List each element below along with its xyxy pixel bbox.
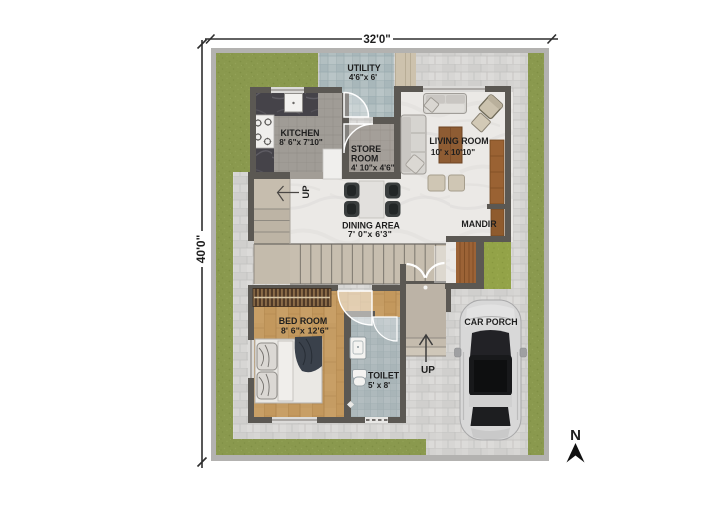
svg-text:ROOM: ROOM	[351, 154, 378, 164]
svg-text:UP: UP	[301, 185, 312, 199]
svg-text:7' 0"x 6'3": 7' 0"x 6'3"	[348, 229, 392, 239]
svg-text:32'0": 32'0"	[363, 34, 390, 46]
svg-text:8' 6"x 12'6": 8' 6"x 12'6"	[281, 326, 329, 336]
svg-text:KITCHEN: KITCHEN	[280, 128, 319, 138]
svg-text:10' x 10'10": 10' x 10'10"	[431, 148, 475, 157]
svg-text:MANDIR: MANDIR	[461, 219, 497, 229]
svg-text:8' 6"x 7'10": 8' 6"x 7'10"	[279, 138, 323, 147]
svg-text:40'0": 40'0"	[194, 235, 208, 264]
svg-text:N: N	[570, 427, 581, 444]
svg-text:5' x 8': 5' x 8'	[368, 381, 390, 390]
svg-text:STORE: STORE	[351, 144, 381, 154]
svg-text:LIVING ROOM: LIVING ROOM	[429, 136, 488, 146]
svg-text:UTILITY: UTILITY	[347, 63, 380, 73]
svg-text:4' 10"x 4'6": 4' 10"x 4'6"	[351, 164, 395, 173]
svg-text:CAR PORCH: CAR PORCH	[464, 317, 517, 327]
svg-text:4'6"x 6': 4'6"x 6'	[349, 73, 377, 82]
svg-text:BED ROOM: BED ROOM	[279, 316, 327, 326]
svg-text:UP: UP	[421, 365, 435, 376]
svg-text:TOILET: TOILET	[368, 371, 400, 381]
